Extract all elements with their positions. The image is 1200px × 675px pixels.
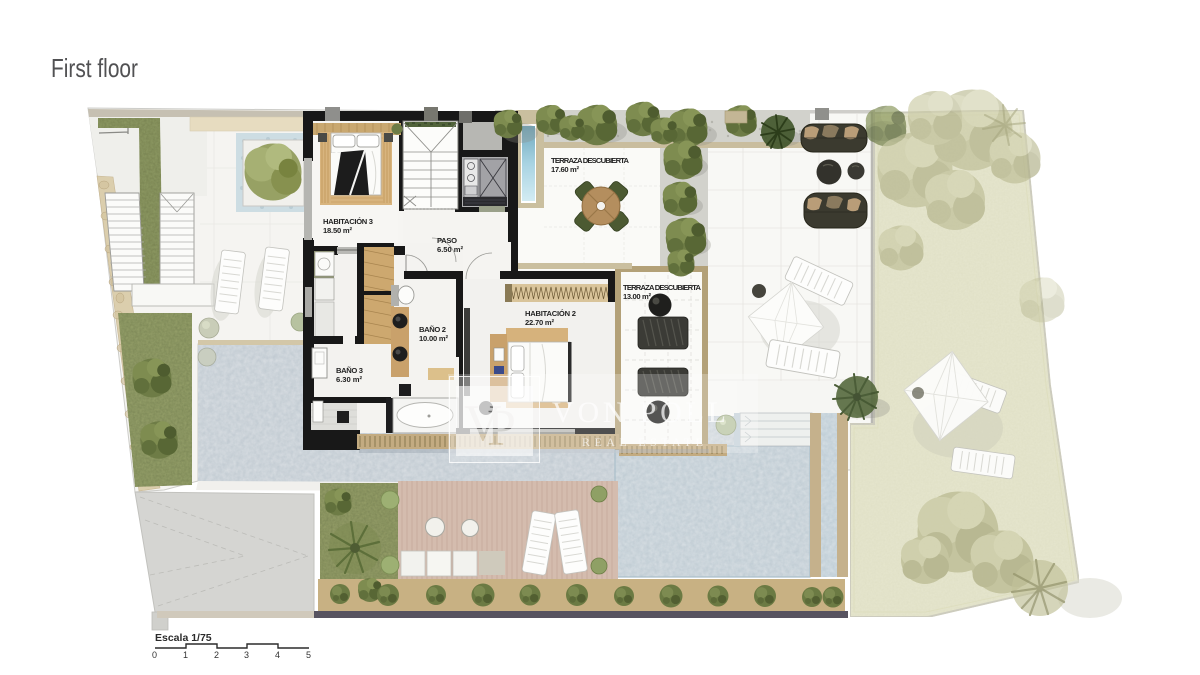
svg-text:6.30 m²: 6.30 m² — [336, 375, 362, 384]
svg-text:10.00 m²: 10.00 m² — [419, 334, 448, 343]
svg-text:6.50 m²: 6.50 m² — [437, 245, 463, 254]
svg-text:REAL ESTATE: REAL ESTATE — [582, 435, 708, 449]
svg-text:5: 5 — [306, 650, 311, 660]
svg-text:Escala 1/75: Escala 1/75 — [155, 632, 212, 644]
svg-text:22.70 m²: 22.70 m² — [525, 318, 554, 327]
svg-text:13.00 m²: 13.00 m² — [623, 292, 651, 301]
svg-text:HABITACIÓN 3: HABITACIÓN 3 — [323, 217, 373, 226]
svg-text:First floor: First floor — [51, 53, 138, 83]
svg-text:VON POLL: VON POLL — [552, 396, 730, 429]
svg-text:1: 1 — [183, 650, 188, 660]
svg-text:18.50 m²: 18.50 m² — [323, 226, 352, 235]
svg-text:BAÑO 3: BAÑO 3 — [336, 366, 363, 375]
svg-text:BAÑO 2: BAÑO 2 — [419, 325, 446, 334]
svg-text:HABITACIÓN 2: HABITACIÓN 2 — [525, 309, 576, 318]
svg-text:2: 2 — [214, 650, 219, 660]
svg-text:PASO: PASO — [437, 236, 457, 245]
svg-text:TERRAZA DESCUBIERTA: TERRAZA DESCUBIERTA — [623, 283, 702, 292]
svg-text:4: 4 — [275, 650, 280, 660]
svg-text:TERRAZA DESCUBIERTA: TERRAZA DESCUBIERTA — [551, 156, 630, 165]
svg-text:3: 3 — [244, 650, 249, 660]
svg-text:17.60 m²: 17.60 m² — [551, 165, 579, 174]
svg-text:0: 0 — [152, 650, 157, 660]
